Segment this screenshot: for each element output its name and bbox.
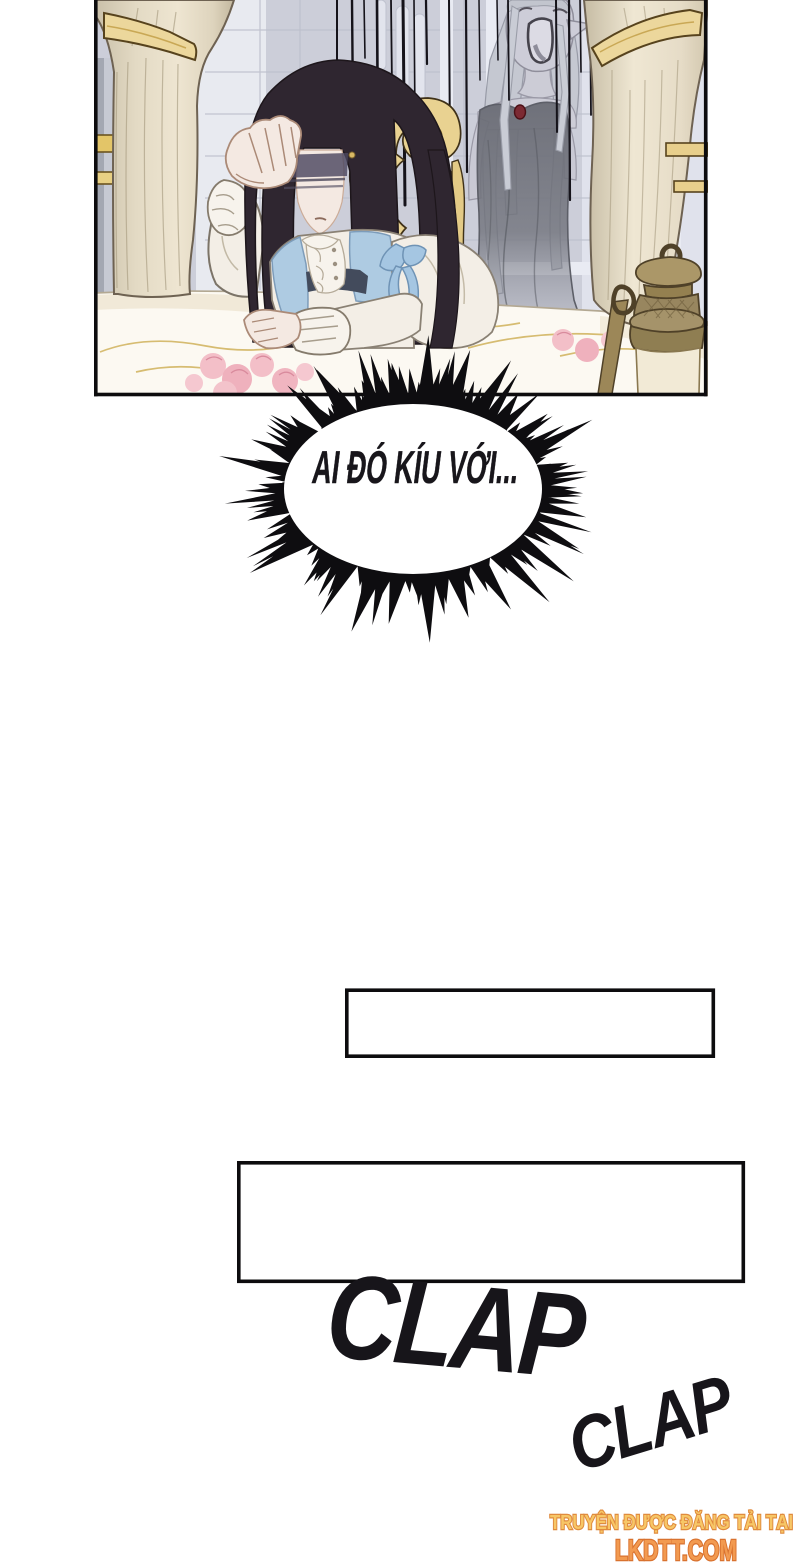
svg-text:LKDTT.COM: LKDTT.COM [615, 1535, 737, 1564]
svg-text:TRUYỆN ĐƯỢC ĐĂNG TẢI TẠI: TRUYỆN ĐƯỢC ĐĂNG TẢI TẠI [550, 1510, 793, 1534]
svg-text:CLAP: CLAP [322, 1249, 591, 1404]
svg-text:AI ĐÓ KÍU VỚI...: AI ĐÓ KÍU VỚI... [310, 441, 522, 493]
